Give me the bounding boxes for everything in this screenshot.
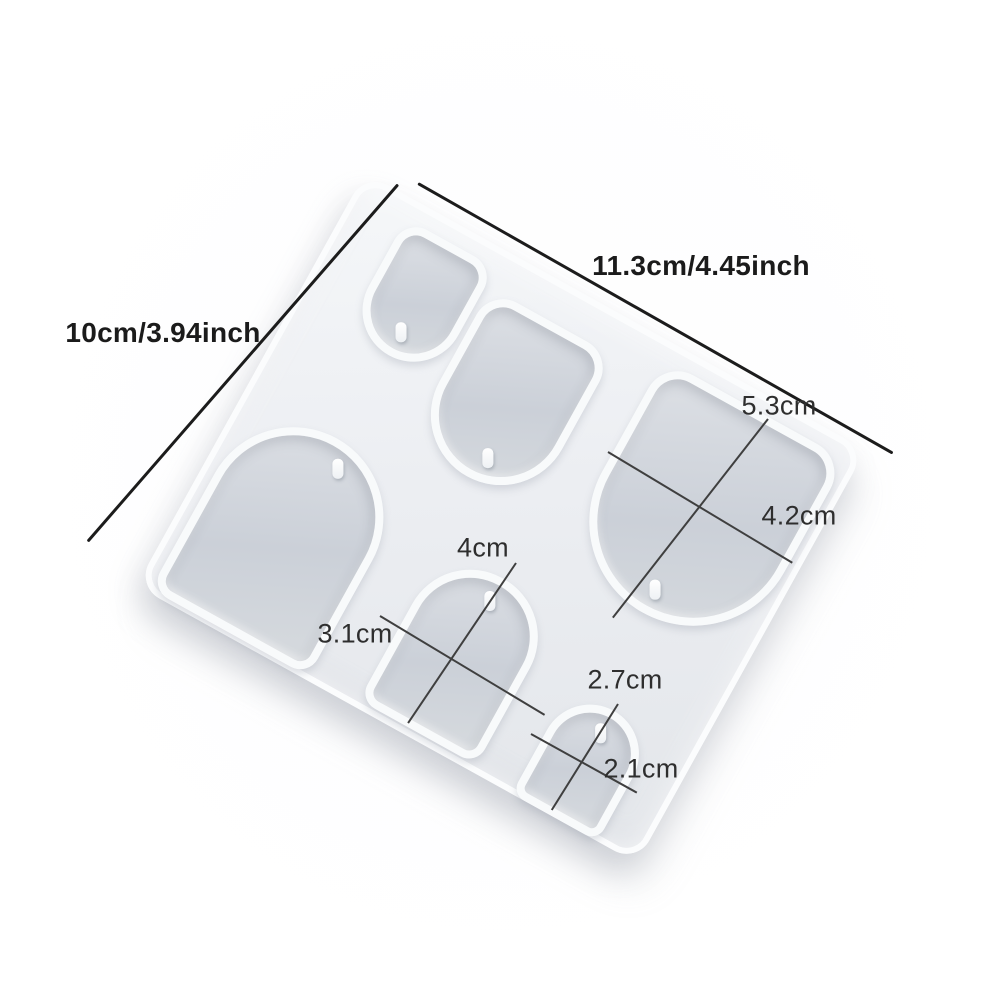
overall-height-label: 10cm/3.94inch [65,317,260,349]
hole-peg [482,448,493,468]
medium-cavity-width-label: 3.1cm [317,619,392,650]
small-cavity-width-label: 2.1cm [603,754,678,785]
medium-cavity-height-label: 4cm [457,533,509,564]
hole-peg [650,580,661,600]
large-cavity-height-label: 5.3cm [741,391,816,422]
hole-peg [332,459,343,479]
overall-width-label: 11.3cm/4.45inch [592,250,810,282]
large-cavity-width-label: 4.2cm [761,501,836,532]
small-cavity-height-label: 2.7cm [587,665,662,696]
product-dimension-image: 11.3cm/4.45inch 10cm/3.94inch 5.3cm 4.2c… [0,0,1002,1002]
hole-peg [396,322,407,342]
